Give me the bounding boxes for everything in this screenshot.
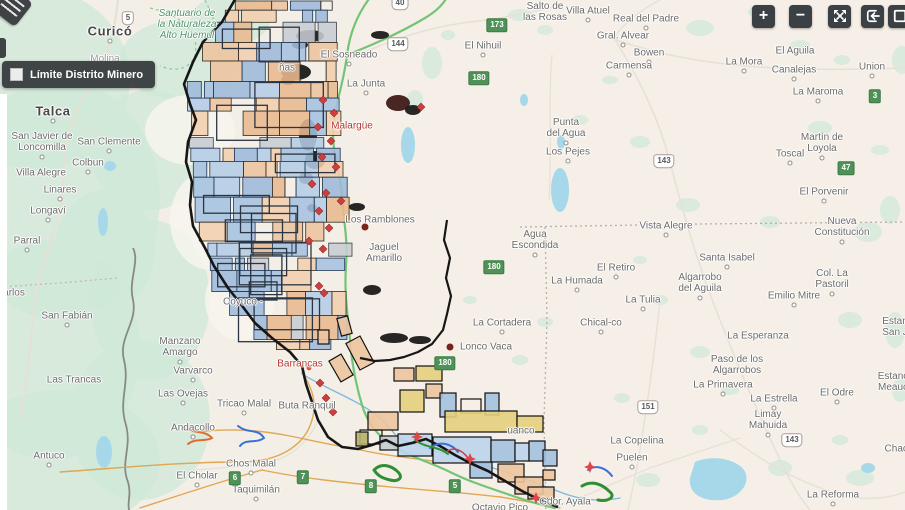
route-shield-180: 180 xyxy=(434,356,455,370)
map-label-uanco: uanco xyxy=(507,425,534,436)
map-label-san-fabi-n: San Fabián xyxy=(41,310,92,321)
map-label-nueva-constituci-n: Nueva Constitución xyxy=(814,216,869,238)
route-shield-47: 47 xyxy=(838,161,855,175)
map-label-la-maroma: La Maroma xyxy=(793,86,844,97)
map-label-vista-alegre: Vista Alegre xyxy=(639,220,692,231)
route-shield-6: 6 xyxy=(229,471,241,485)
map-label-el-retiro: El Retiro xyxy=(597,262,635,273)
map-label-puelen: Puelen xyxy=(616,452,647,463)
map-label-villa-atuel: Villa Atuel xyxy=(566,5,610,16)
route-shield-180: 180 xyxy=(468,71,489,85)
map-label-algarrobo-del-aguila: Algarrobo del Aguila xyxy=(678,272,721,294)
map-label-la-estrella: La Estrella xyxy=(750,393,797,404)
route-shield-40: 40 xyxy=(392,0,409,10)
map-label-el-odre: El Odre xyxy=(820,387,854,398)
map-label-santuario-de-la-naturaleza-alto-huemul: Santuario de la Naturaleza Alto Huemul xyxy=(158,8,217,42)
map-label-chach: Chach xyxy=(885,443,905,454)
map-label-gral-alvear: Gral. Alvear xyxy=(597,30,649,41)
map-label-andacollo: Andacollo xyxy=(171,422,215,433)
map-label-el-cholar: El Cholar xyxy=(176,470,217,481)
map-label-octavio-pico: Octavio Pico xyxy=(472,502,528,510)
route-shield-8: 8 xyxy=(365,479,377,493)
route-shield-3: 3 xyxy=(869,89,881,103)
map-label-curic: Curicó xyxy=(88,25,133,40)
map-label-lonco-vaca: Lonco Vaca xyxy=(460,341,512,352)
map-label-toscal: Toscal xyxy=(776,148,804,159)
map-label-chos-malal: Chos Malal xyxy=(226,458,276,469)
route-shield-143: 143 xyxy=(781,433,802,447)
legend-label: Límite Distrito Minero xyxy=(30,69,143,81)
map-label-colbun: Colbun xyxy=(72,157,104,168)
map-application: Santuario de la Naturaleza Alto HuemulCu… xyxy=(0,0,905,510)
edge-partial-button[interactable] xyxy=(0,38,6,58)
map-label-parral: Parral xyxy=(14,235,41,246)
map-label-la-humada: La Humada xyxy=(551,275,603,286)
map-label-mart-n-de-loyola: Martín de Loyola xyxy=(801,132,843,154)
map-label-la-tulia: La Tulia xyxy=(625,294,660,305)
map-label-agua-escondida: Agua Escondida xyxy=(512,229,559,251)
map-label-los-pejes: Los Pejes xyxy=(546,146,590,157)
map-label-gdor-ayala: Gdor. Ayala xyxy=(539,496,591,507)
map-label-limay-mahuida: Limay Mahuida xyxy=(749,409,787,431)
route-shield-144: 144 xyxy=(387,37,408,51)
map-label-antuco: Antuco xyxy=(33,450,64,461)
map-label-bowen: Bowen xyxy=(634,47,665,58)
map-label-paso-de-los-algarrobos: Paso de los Algarrobos xyxy=(711,354,763,376)
map-label-as: ñas xyxy=(279,62,295,73)
map-label-canalejas: Canalejas xyxy=(772,64,816,75)
route-shield-5: 5 xyxy=(449,479,461,493)
map-label-las-ovejas: Las Ovejas xyxy=(158,388,208,399)
map-label-la-cortadera: La Cortadera xyxy=(473,317,531,328)
legend-limite-distrito-minero[interactable]: Límite Distrito Minero xyxy=(2,61,155,88)
map-label-el-sosneado: El Sosneado xyxy=(321,49,378,60)
map-label-barrancas: Barrancas xyxy=(277,358,323,369)
route-shield-143: 143 xyxy=(653,154,674,168)
map-label-buta-ranquil: Buta Ranquil xyxy=(278,400,335,411)
expand-button[interactable] xyxy=(828,5,851,28)
map-label-salto-de-las-rosas: Salto de las Rosas xyxy=(523,1,567,23)
collapse-extent-button[interactable] xyxy=(861,5,884,28)
map-label-longav: Longaví xyxy=(30,205,66,216)
map-label-jaguel-amarillo: Jaguel Amarillo xyxy=(366,242,402,264)
route-shield-5: 5 xyxy=(122,11,134,25)
map-label-varvarco: Varvarco xyxy=(173,365,212,376)
map-label-la-reforma: La Reforma xyxy=(807,489,859,500)
map-label-real-del-padre: Real del Padre xyxy=(613,13,679,24)
map-label-las-trancas: Las Trancas xyxy=(47,374,101,385)
map-label-union: Union xyxy=(859,61,885,72)
route-shield-173: 173 xyxy=(486,18,507,32)
map-label-taquimil-n: Taquimilán xyxy=(232,484,280,495)
map-label-chical-co: Chical-co xyxy=(580,317,622,328)
map-label-la-primavera: La Primavera xyxy=(693,379,752,390)
map-label-santa-isabel: Santa Isabel xyxy=(699,252,755,263)
map-label-estan-san-j: Estan San J xyxy=(882,316,905,338)
zoom-out-button[interactable]: − xyxy=(789,5,812,28)
map-label-la-esperanza: La Esperanza xyxy=(727,330,789,341)
map-label-manzano-amargo: Manzano Amargo xyxy=(159,336,200,358)
map-label-punta-del-agua: Punta del Agua xyxy=(547,117,586,139)
window-edge xyxy=(0,94,7,510)
map-label-el-aguila: El Aguila xyxy=(776,45,815,56)
map-label-col-la-pastoril: Col. La Pastoril xyxy=(815,268,848,290)
map-label-san-javier-de-loncomilla: San Javier de Loncomilla xyxy=(11,131,72,153)
map-label-linares: Linares xyxy=(44,184,77,195)
map-label-carmensa: Carmensa xyxy=(606,60,652,71)
map-label-malarg-e: Malargüe xyxy=(331,120,373,131)
map-label-tricao-malal: Tricao Malal xyxy=(217,398,271,409)
map-label-la-mora: La Mora xyxy=(726,56,763,67)
layers-icon xyxy=(0,0,25,18)
map-label-el-nihuil: El Nihuil xyxy=(465,40,502,51)
fullscreen-button[interactable] xyxy=(888,5,905,28)
route-shield-180: 180 xyxy=(483,260,504,274)
zoom-in-button[interactable]: + xyxy=(752,5,775,28)
legend-swatch-icon xyxy=(10,68,23,81)
route-shield-7: 7 xyxy=(297,470,309,484)
map-label-villa-alegre: Villa Alegre xyxy=(16,167,66,178)
map-label-estanc-meauc: Estanc Meauc xyxy=(878,371,905,393)
map-label-los-ramblones: Los Ramblones xyxy=(345,214,414,225)
route-shield-151: 151 xyxy=(637,400,658,414)
map-label-san-clemente: San Clemente xyxy=(77,136,140,147)
map-label-la-junta: La Junta xyxy=(347,78,385,89)
map-label-el-porvenir: El Porvenir xyxy=(800,186,849,197)
map-label-talca: Talca xyxy=(35,105,70,120)
map-label-la-copelina: La Copelina xyxy=(610,435,663,446)
map-label-emilio-mitre: Emilio Mitre xyxy=(768,290,820,301)
map-label-coyuco: Coyuco - xyxy=(223,296,263,307)
